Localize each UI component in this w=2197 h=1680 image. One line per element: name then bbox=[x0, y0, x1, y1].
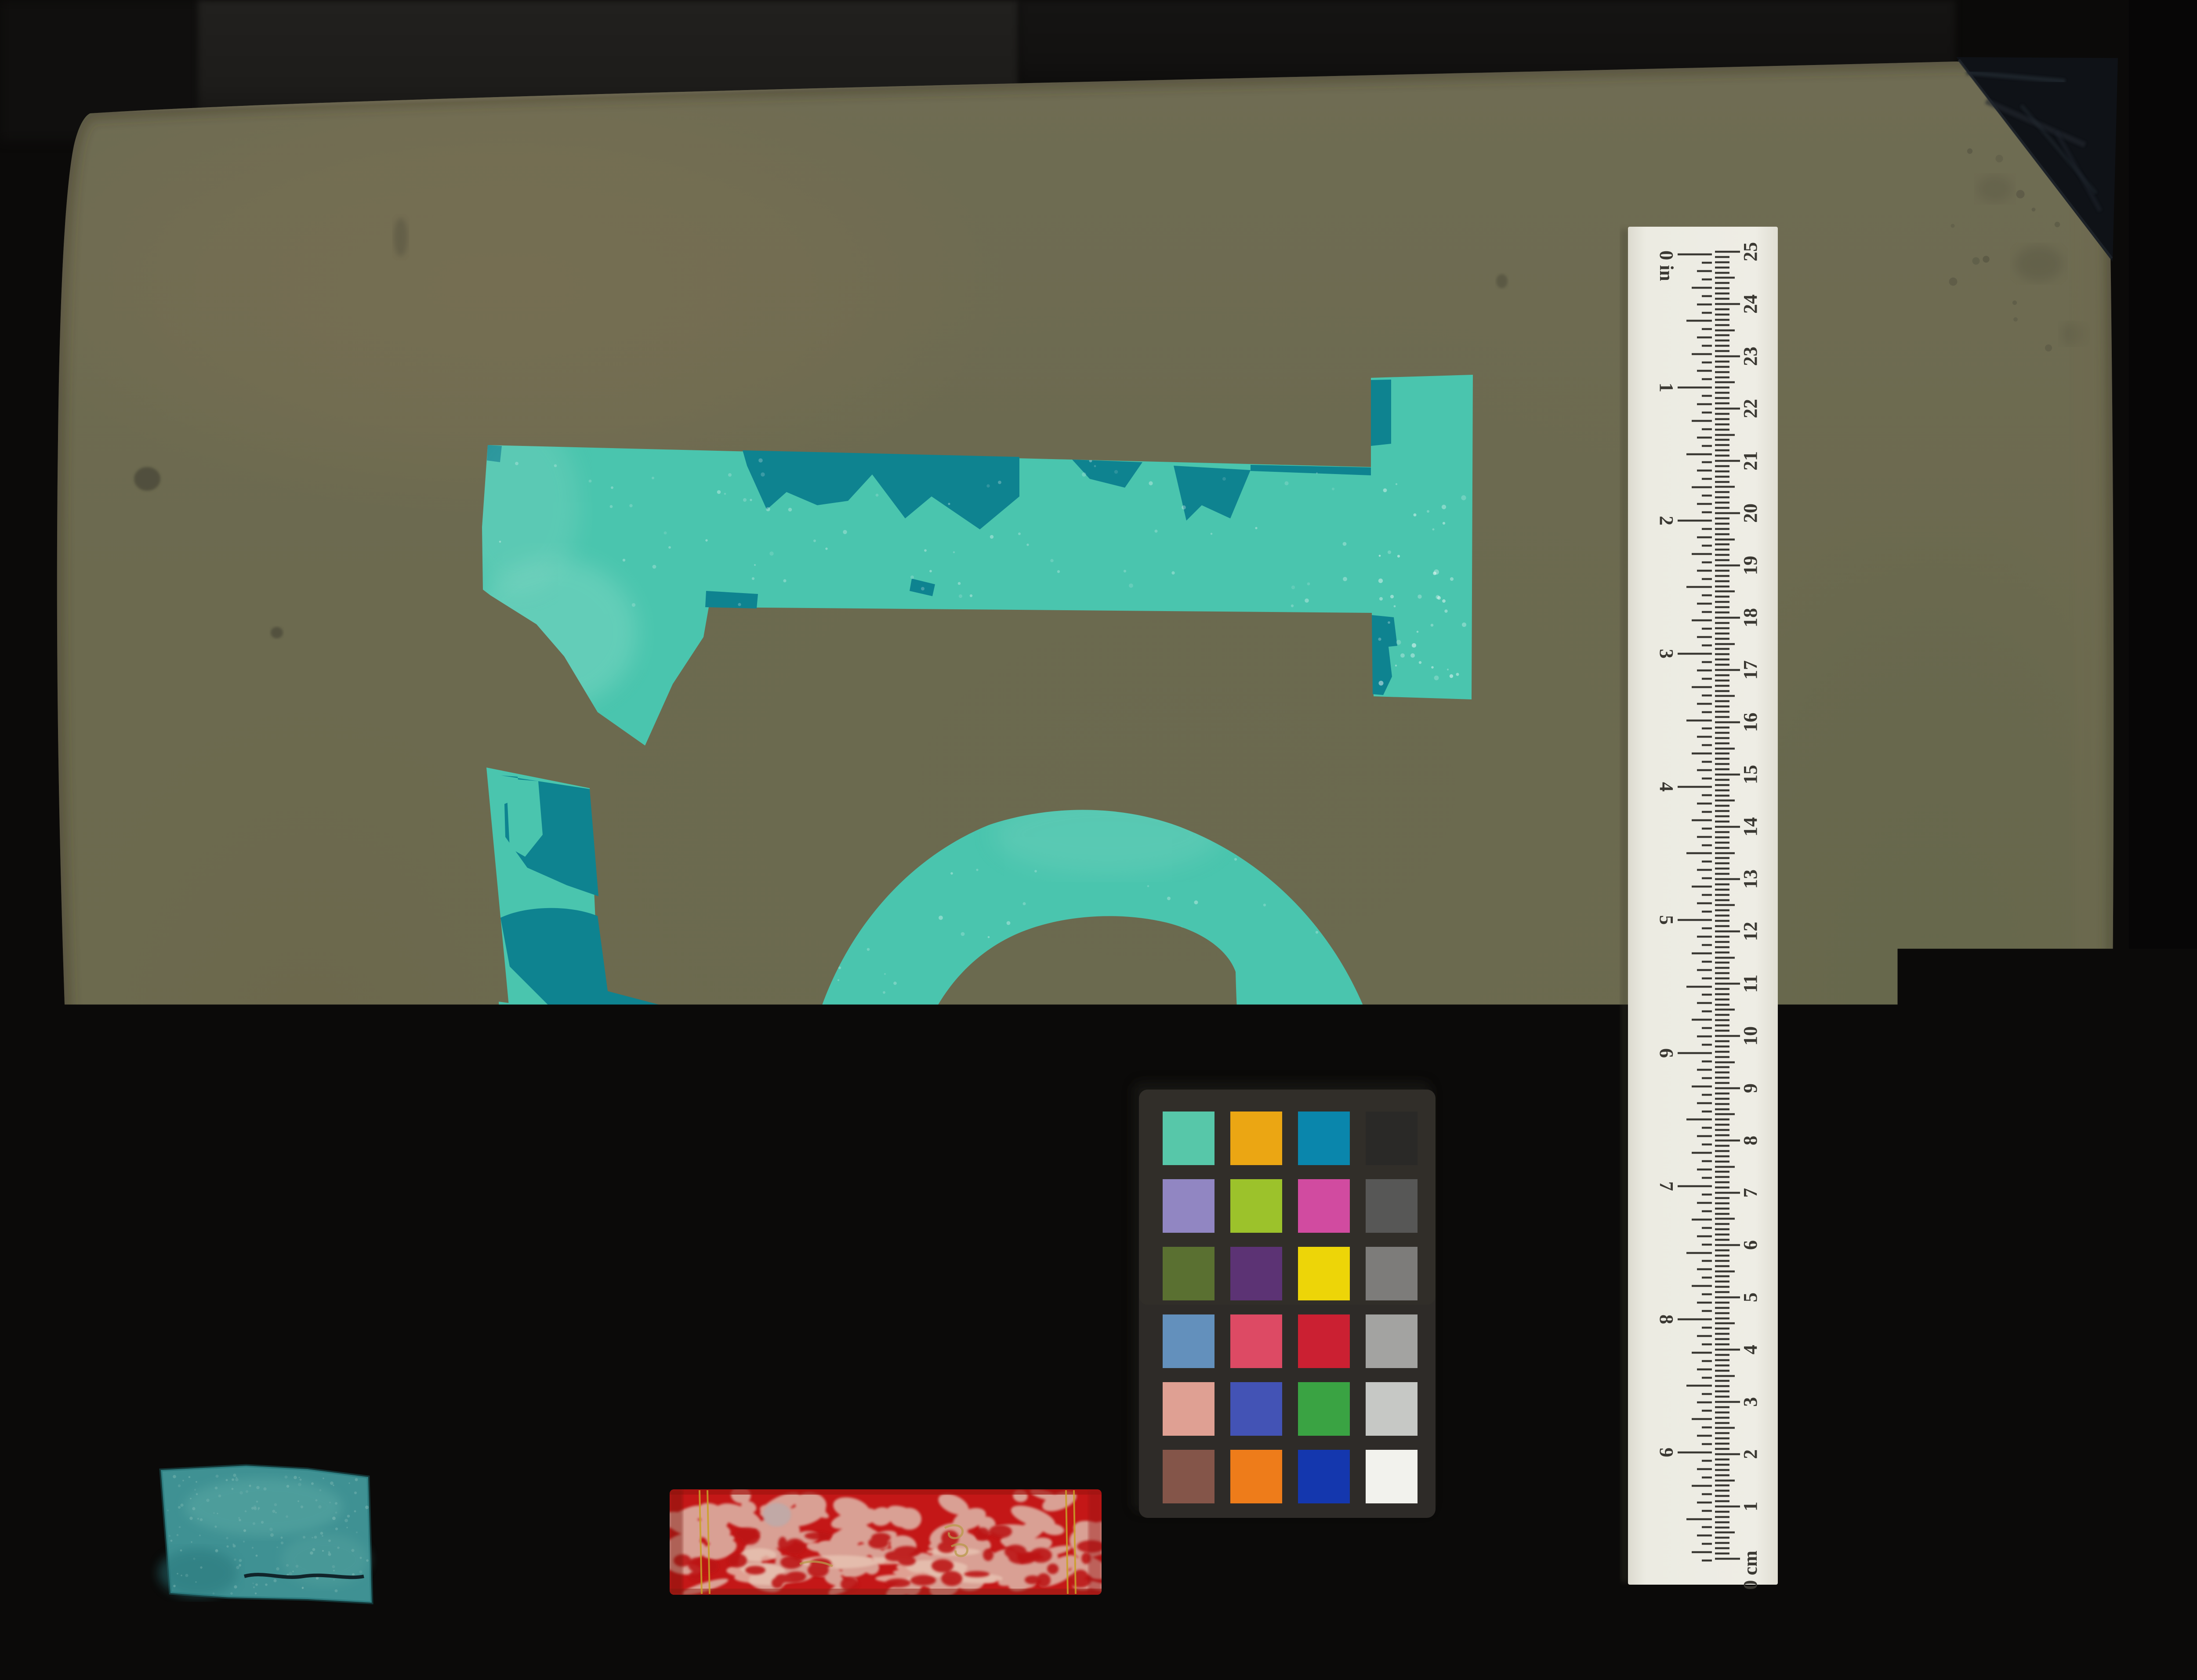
svg-text:8: 8 bbox=[1740, 1136, 1761, 1145]
svg-text:1: 1 bbox=[1656, 383, 1677, 392]
svg-text:7: 7 bbox=[1740, 1188, 1761, 1198]
svg-text:9: 9 bbox=[1740, 1083, 1761, 1093]
svg-text:14: 14 bbox=[1740, 817, 1761, 836]
svg-text:2: 2 bbox=[1740, 1449, 1761, 1459]
svg-text:12: 12 bbox=[1740, 922, 1761, 941]
svg-text:6: 6 bbox=[1740, 1240, 1761, 1250]
svg-text:4: 4 bbox=[1656, 782, 1677, 792]
svg-text:4: 4 bbox=[1740, 1345, 1761, 1354]
svg-text:1: 1 bbox=[1740, 1502, 1761, 1511]
svg-text:7: 7 bbox=[1656, 1181, 1677, 1191]
svg-text:21: 21 bbox=[1740, 451, 1761, 471]
svg-text:3: 3 bbox=[1740, 1397, 1761, 1407]
svg-text:13: 13 bbox=[1740, 869, 1761, 889]
svg-text:17: 17 bbox=[1740, 660, 1761, 680]
svg-text:3: 3 bbox=[1656, 649, 1677, 659]
svg-text:23: 23 bbox=[1740, 347, 1761, 366]
svg-text:11: 11 bbox=[1740, 974, 1761, 993]
svg-text:2: 2 bbox=[1656, 516, 1677, 525]
svg-text:0 cm: 0 cm bbox=[1740, 1550, 1761, 1589]
svg-text:20: 20 bbox=[1740, 503, 1761, 523]
svg-text:8: 8 bbox=[1656, 1314, 1677, 1324]
svg-text:10: 10 bbox=[1740, 1026, 1761, 1046]
svg-text:18: 18 bbox=[1740, 608, 1761, 627]
svg-text:6: 6 bbox=[1656, 1048, 1677, 1058]
svg-text:5: 5 bbox=[1656, 915, 1677, 925]
svg-text:22: 22 bbox=[1740, 399, 1761, 418]
svg-text:5: 5 bbox=[1740, 1293, 1761, 1302]
svg-text:25: 25 bbox=[1740, 242, 1761, 261]
svg-text:0 in: 0 in bbox=[1656, 250, 1677, 281]
svg-text:16: 16 bbox=[1740, 713, 1761, 732]
svg-text:24: 24 bbox=[1740, 294, 1761, 314]
svg-text:19: 19 bbox=[1740, 556, 1761, 575]
svg-text:9: 9 bbox=[1656, 1448, 1677, 1457]
svg-text:15: 15 bbox=[1740, 765, 1761, 784]
